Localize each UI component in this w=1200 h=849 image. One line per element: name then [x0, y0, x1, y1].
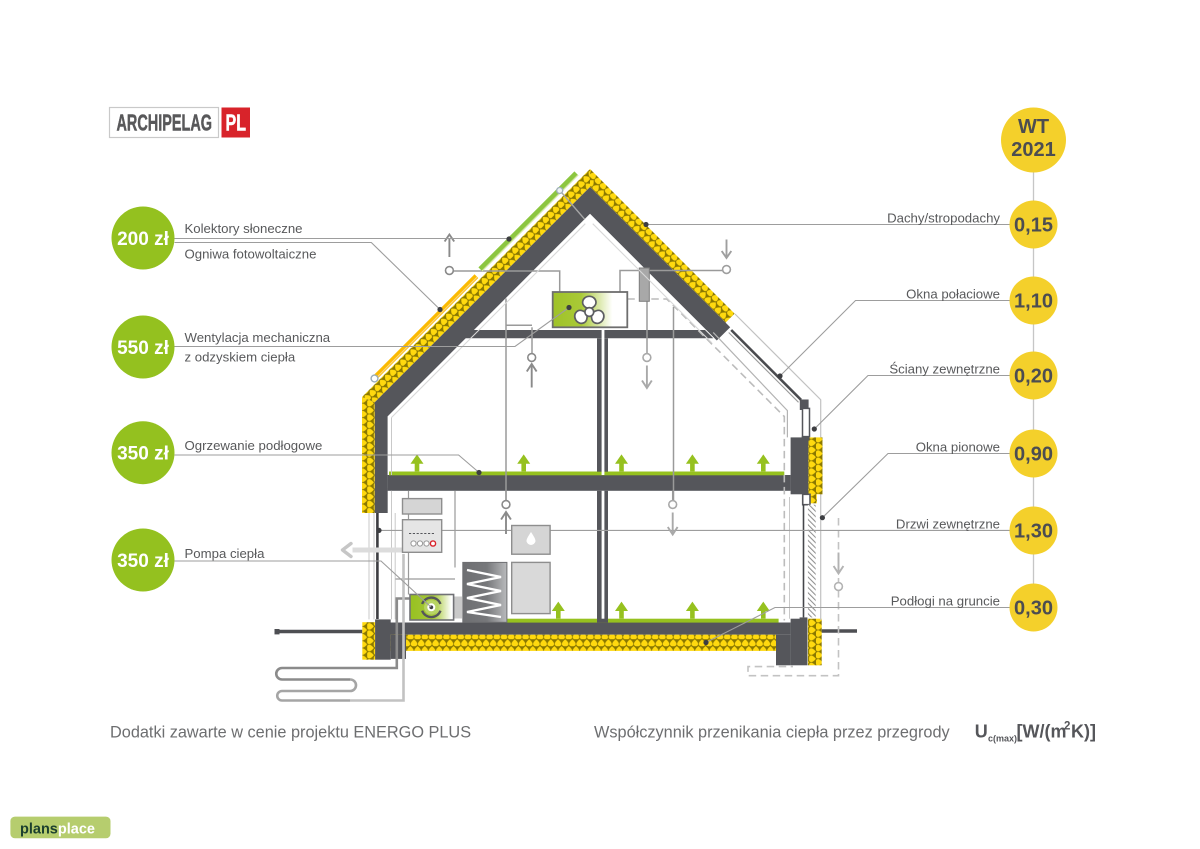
svg-text:K)]: K)] [1071, 722, 1096, 742]
svg-text:PL: PL [226, 110, 247, 136]
svg-text:Okna pionowe: Okna pionowe [916, 440, 1000, 455]
svg-text:Ogniwa fotowoltaiczne: Ogniwa fotowoltaiczne [185, 247, 317, 262]
svg-text:ARCHIPELAG: ARCHIPELAG [117, 110, 213, 136]
svg-text:z odzyskiem ciepła: z odzyskiem ciepła [185, 350, 296, 365]
svg-text:1,30: 1,30 [1014, 521, 1053, 543]
svg-text:1,10: 1,10 [1014, 291, 1053, 313]
svg-text:plansplace: plansplace [20, 822, 95, 838]
svg-text:Dachy/stropodachy: Dachy/stropodachy [887, 211, 1000, 226]
svg-text:Okna połaciowe: Okna połaciowe [906, 287, 1000, 302]
svg-text:Ogrzewanie podłogowe: Ogrzewanie podłogowe [185, 438, 323, 453]
svg-text:2: 2 [1064, 721, 1070, 733]
svg-text:350 zł: 350 zł [117, 551, 169, 572]
svg-text:0,20: 0,20 [1014, 366, 1053, 388]
svg-text:Wentylacja mechaniczna: Wentylacja mechaniczna [185, 330, 331, 345]
svg-text:Dodatki zawarte w cenie projek: Dodatki zawarte w cenie projektu ENERGO … [110, 724, 471, 742]
svg-text:350 zł: 350 zł [117, 444, 169, 465]
svg-text:Pompa ciepła: Pompa ciepła [185, 546, 266, 561]
svg-text:0,90: 0,90 [1014, 444, 1053, 466]
svg-text:0,30: 0,30 [1014, 598, 1053, 620]
svg-text:[W/(m: [W/(m [1017, 722, 1067, 742]
svg-text:200 zł: 200 zł [117, 229, 169, 250]
svg-text:550 zł: 550 zł [117, 338, 169, 359]
svg-text:Ściany zewnętrzne: Ściany zewnętrzne [889, 362, 1000, 377]
svg-text:0,15: 0,15 [1014, 215, 1053, 237]
svg-text:Kolektory słoneczne: Kolektory słoneczne [185, 221, 303, 236]
svg-text:WT: WT [1018, 116, 1049, 138]
svg-text:Drzwi zewnętrzne: Drzwi zewnętrzne [896, 517, 1000, 532]
svg-text:U: U [975, 722, 988, 742]
svg-text:Współczynnik przenikania ciepł: Współczynnik przenikania ciepła przez pr… [594, 724, 950, 742]
svg-text:2021: 2021 [1011, 139, 1056, 161]
svg-text:c(max): c(max) [988, 734, 1017, 744]
svg-text:Podłogi na gruncie: Podłogi na gruncie [891, 594, 1000, 609]
